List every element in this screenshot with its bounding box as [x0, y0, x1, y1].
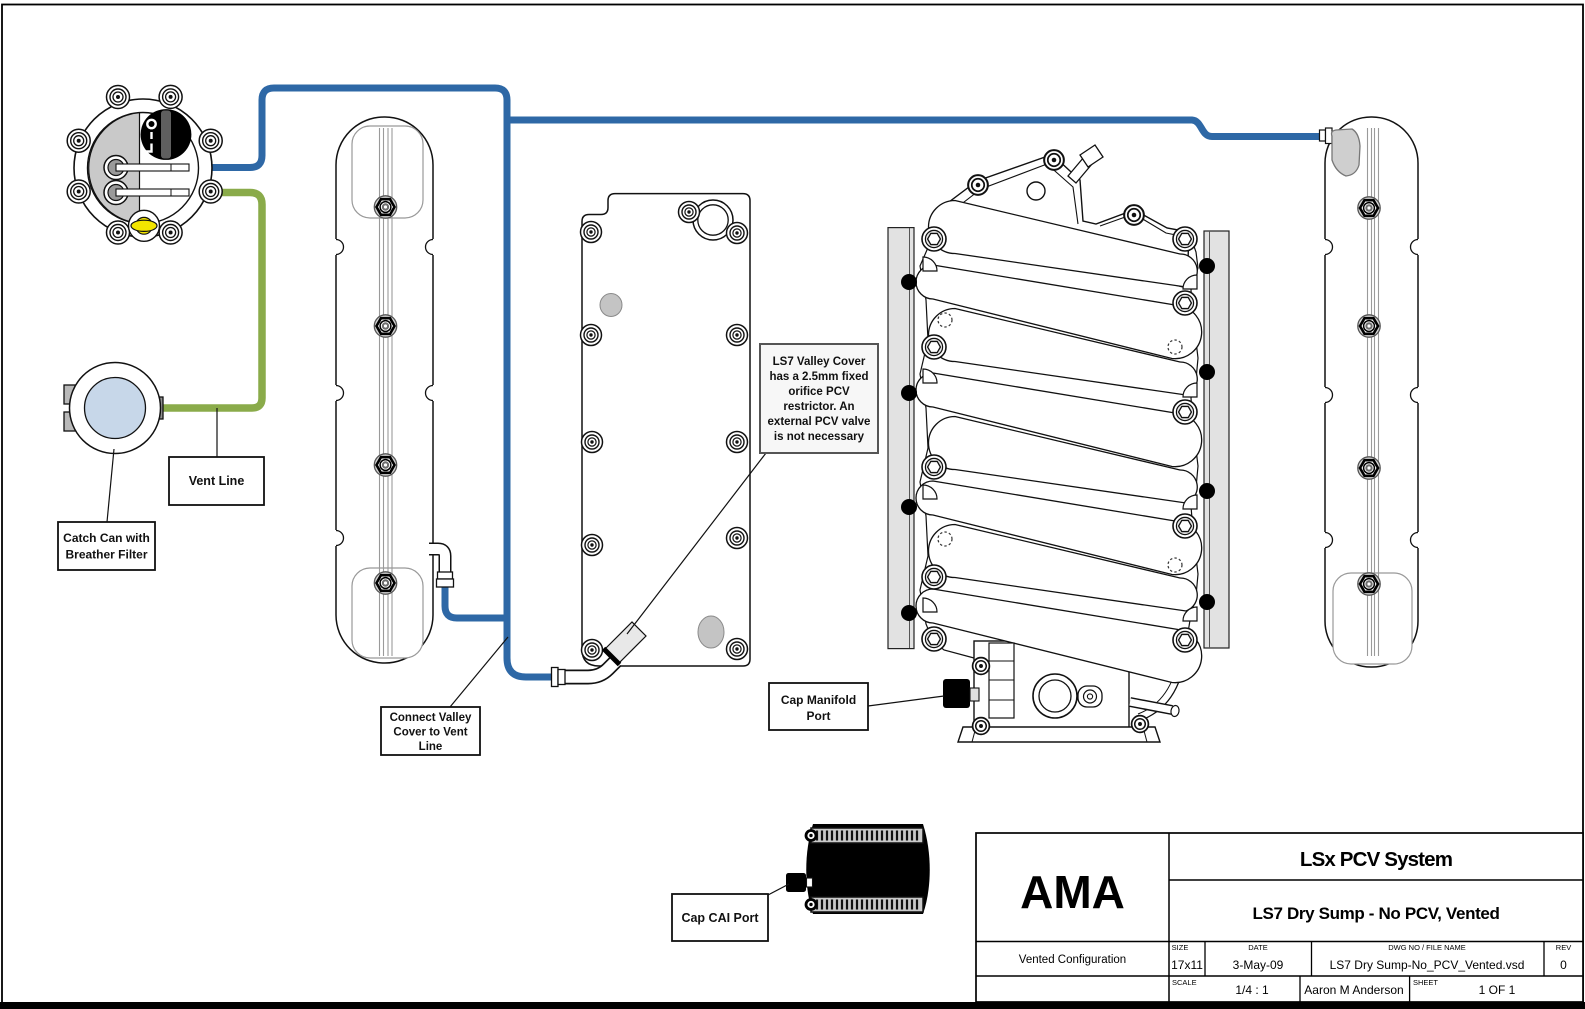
svg-text:has a 2.5mm fixed: has a 2.5mm fixed	[769, 371, 868, 383]
svg-text:REV: REV	[1556, 943, 1571, 952]
svg-text:LS7 Dry Sump - No PCV, Vented: LS7 Dry Sump - No PCV, Vented	[1252, 904, 1499, 923]
svg-text:3-May-09: 3-May-09	[1233, 958, 1284, 972]
svg-text:LSx PCV System: LSx PCV System	[1300, 848, 1452, 871]
svg-text:Vent Line: Vent Line	[189, 474, 245, 488]
svg-text:is not necessary: is not necessary	[774, 431, 865, 443]
svg-text:Cover to Vent: Cover to Vent	[393, 727, 467, 739]
svg-text:Cap Manifold: Cap Manifold	[781, 693, 856, 707]
svg-text:1 OF 1: 1 OF 1	[1479, 983, 1516, 997]
svg-text:LS7 Valley Cover: LS7 Valley Cover	[773, 356, 866, 368]
svg-text:Breather Filter: Breather Filter	[65, 548, 147, 562]
svg-text:orifice PCV: orifice PCV	[788, 386, 850, 398]
svg-text:17x11: 17x11	[1171, 958, 1203, 972]
svg-text:Connect Valley: Connect Valley	[390, 712, 472, 724]
svg-text:1/4 : 1: 1/4 : 1	[1235, 983, 1269, 997]
svg-text:DWG NO / FILE NAME: DWG NO / FILE NAME	[1388, 943, 1466, 952]
svg-text:DATE: DATE	[1248, 943, 1267, 952]
svg-text:AMA: AMA	[1020, 866, 1125, 918]
svg-text:Vented Configuration: Vented Configuration	[1019, 954, 1126, 966]
svg-text:restrictor. An: restrictor. An	[783, 401, 854, 413]
svg-text:SCALE: SCALE	[1172, 978, 1197, 987]
svg-text:external PCV valve: external PCV valve	[768, 416, 871, 428]
svg-text:Catch Can with: Catch Can with	[63, 531, 150, 545]
svg-text:Line: Line	[419, 741, 443, 753]
svg-text:SIZE: SIZE	[1172, 943, 1189, 952]
svg-text:Aaron M Anderson: Aaron M Anderson	[1304, 983, 1403, 997]
svg-text:SHEET: SHEET	[1413, 978, 1438, 987]
svg-text:Port: Port	[807, 709, 831, 723]
svg-text:0: 0	[1560, 958, 1567, 972]
svg-text:Cap CAI Port: Cap CAI Port	[681, 911, 759, 925]
svg-text:LS7 Dry Sump-No_PCV_Vented.vsd: LS7 Dry Sump-No_PCV_Vented.vsd	[1330, 958, 1525, 972]
